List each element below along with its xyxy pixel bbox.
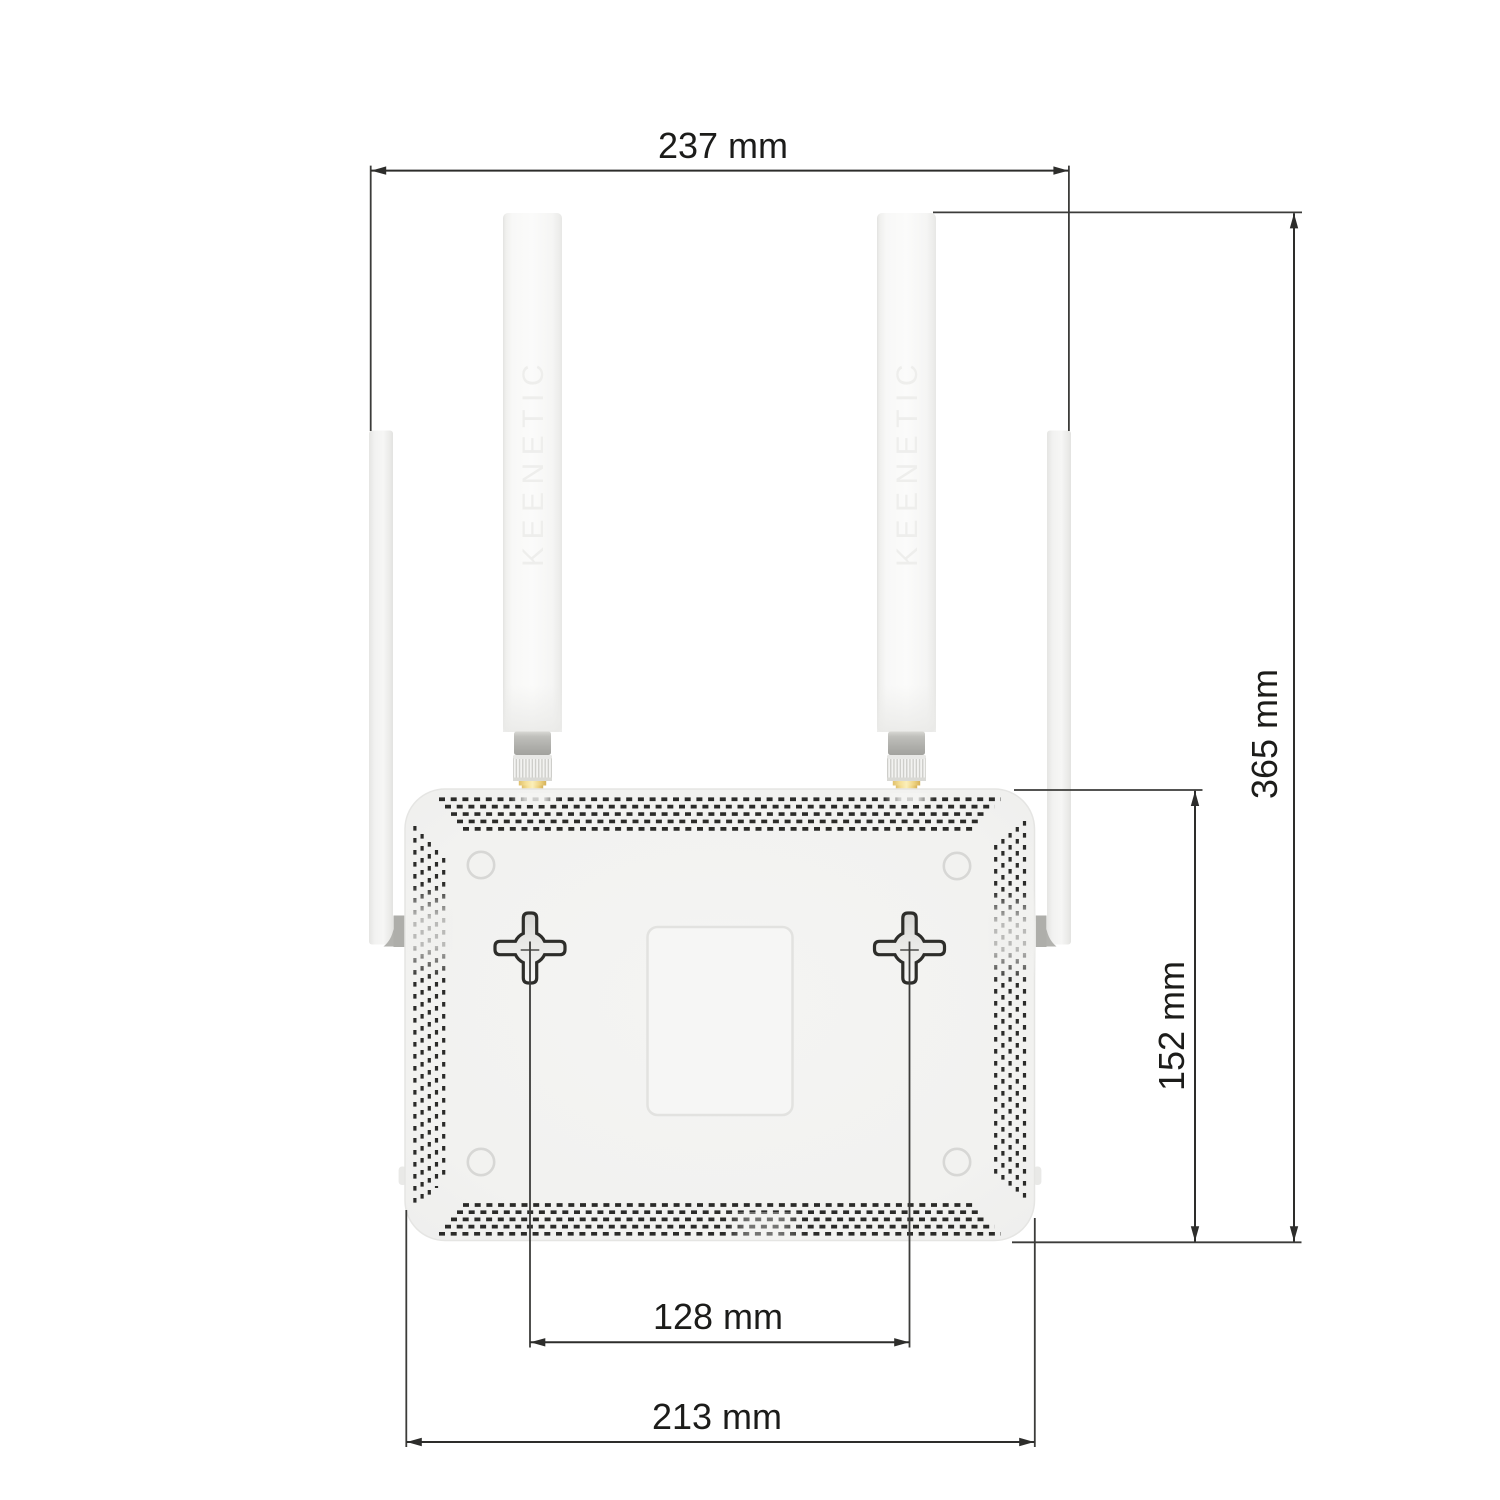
svg-text:KEENETIC: KEENETIC bbox=[517, 357, 550, 567]
svg-text:128 mm: 128 mm bbox=[653, 1296, 783, 1337]
svg-text:365 mm: 365 mm bbox=[1244, 669, 1285, 799]
svg-text:237 mm: 237 mm bbox=[658, 125, 788, 166]
svg-text:KEENETIC: KEENETIC bbox=[891, 357, 924, 567]
svg-text:152 mm: 152 mm bbox=[1151, 961, 1192, 1091]
svg-text:213 mm: 213 mm bbox=[652, 1396, 782, 1437]
